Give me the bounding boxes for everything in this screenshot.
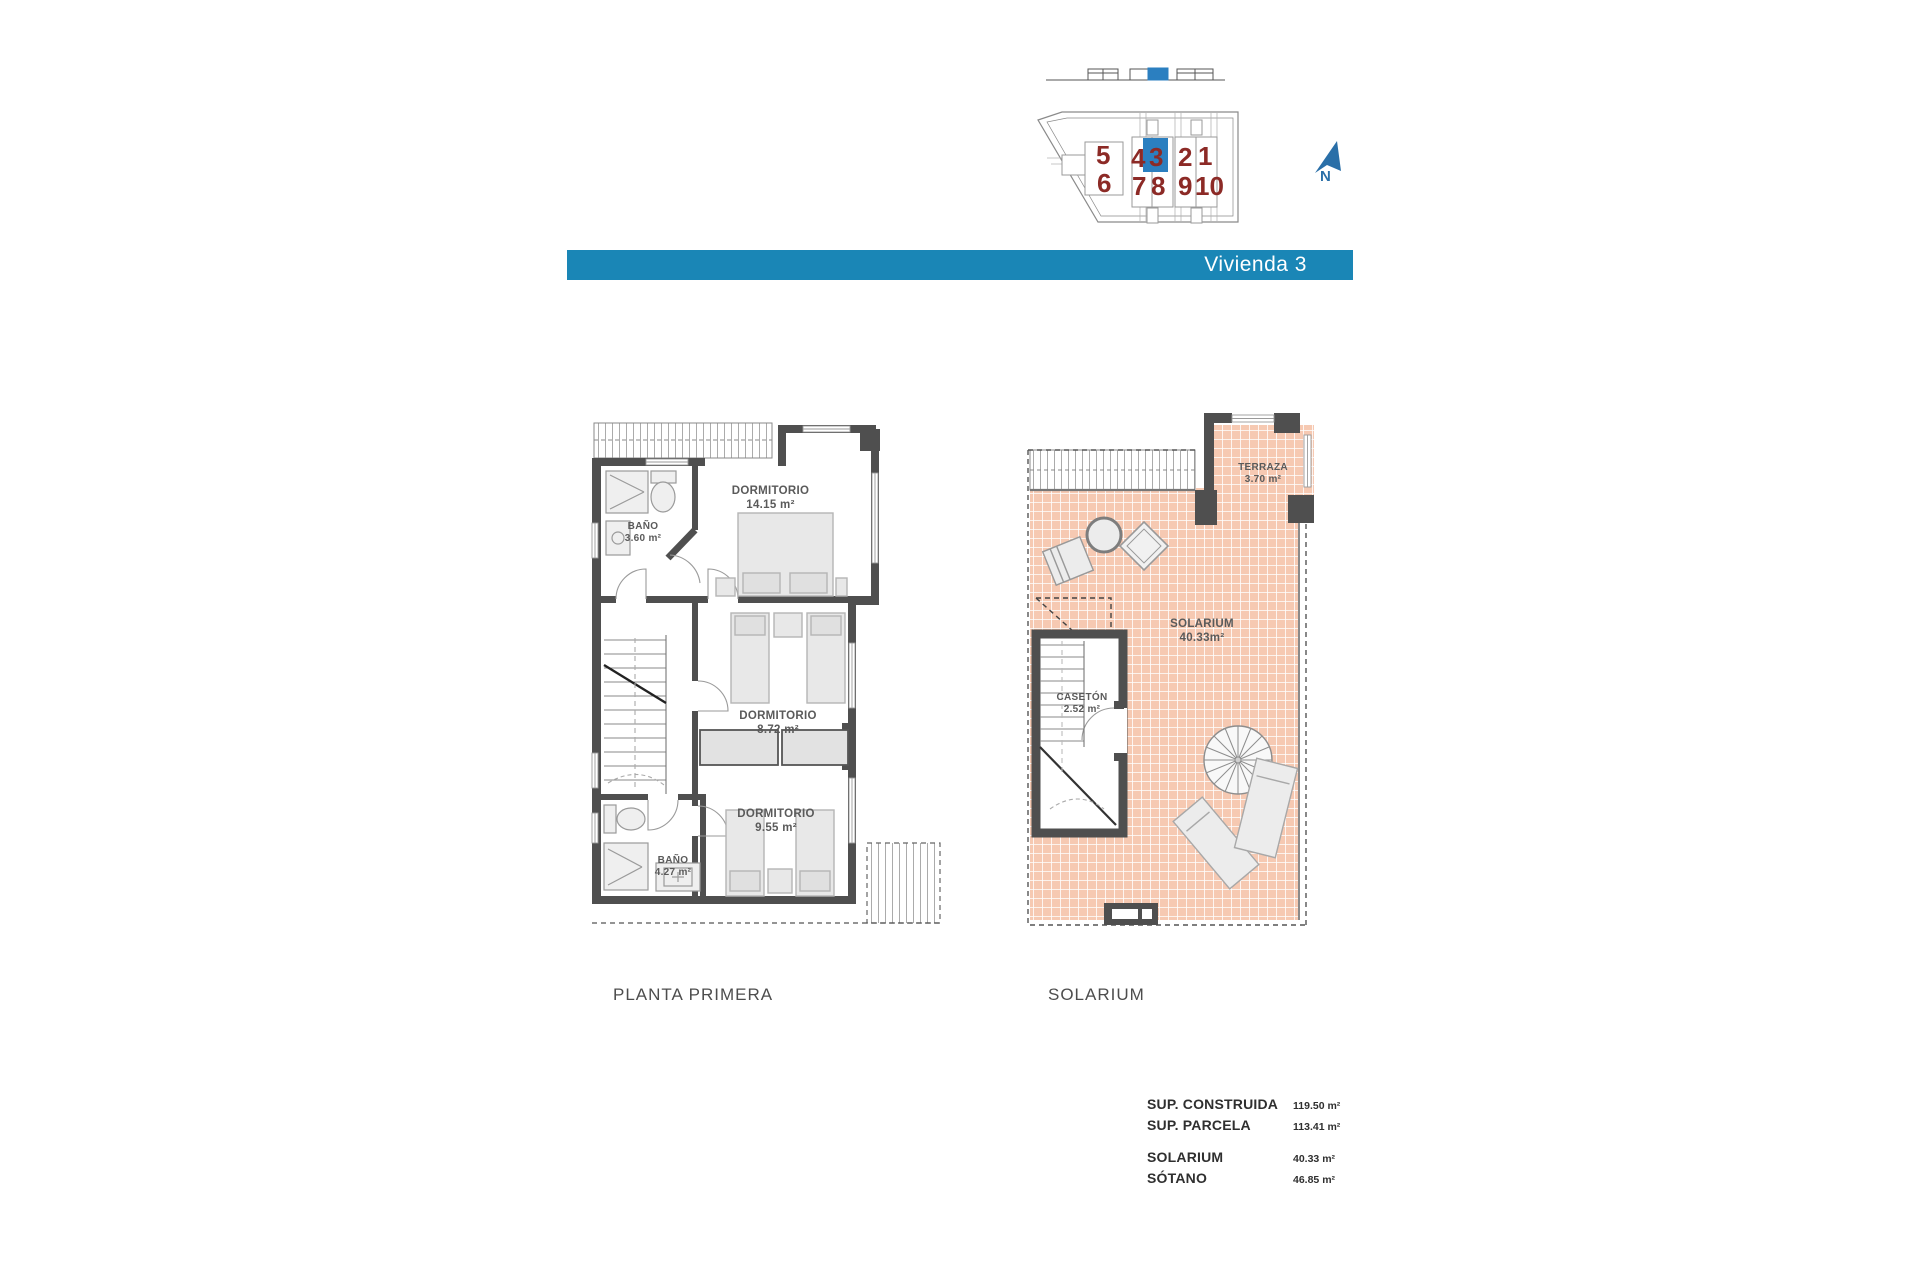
caseton [1036, 634, 1127, 833]
pergola-hatch-bottom-right [867, 843, 940, 923]
unit-number-3: 3 [1149, 144, 1163, 170]
room-label-dorm1: DORMITORIO 14.15 m² [718, 485, 823, 513]
room-label-bath1: BAÑO 3.60 m² [608, 521, 678, 545]
summary-value: 46.85 m² [1293, 1174, 1335, 1186]
summary-row: SUP. PARCELA 113.41 m² [1147, 1117, 1347, 1133]
pergola-hatch-top [594, 423, 772, 458]
unit-number-8: 8 [1151, 173, 1165, 199]
unit-number-7: 7 [1132, 173, 1146, 199]
round-table [1087, 518, 1121, 552]
summary-value: 113.41 m² [1293, 1121, 1340, 1133]
summary-label: SOLARIUM [1147, 1149, 1293, 1165]
room-label-solarium: SOLARIUM 40.33m² [1152, 618, 1252, 646]
caption-solarium: SOLARIUM [1048, 985, 1145, 1005]
summary-label: SUP. PARCELA [1147, 1117, 1293, 1133]
elevation-strip [1046, 68, 1225, 80]
bed-double [716, 513, 847, 596]
unit-number-4: 4 [1131, 145, 1145, 171]
room-label-bath2: BAÑO 4.27 m² [638, 855, 708, 879]
summary-row: SÓTANO 46.85 m² [1147, 1170, 1347, 1186]
chimney [1104, 903, 1158, 925]
beds-twin-upper [731, 613, 845, 703]
unit-number-5: 5 [1096, 142, 1110, 168]
room-label-caseton: CASETÓN 2.52 m² [1042, 692, 1122, 716]
north-label: N [1320, 168, 1331, 185]
title-banner: Vivienda 3 [567, 250, 1353, 280]
unit-number-2: 2 [1178, 144, 1192, 170]
summary-row: SUP. CONSTRUIDA 119.50 m² [1147, 1096, 1347, 1112]
summary-row: SOLARIUM 40.33 m² [1147, 1149, 1347, 1165]
room-label-dorm2: DORMITORIO 8.72 m² [718, 710, 838, 738]
summary-label: SUP. CONSTRUIDA [1147, 1096, 1293, 1112]
area-summary: SUP. CONSTRUIDA 119.50 m² SUP. PARCELA 1… [1147, 1096, 1347, 1186]
summary-value: 119.50 m² [1293, 1100, 1340, 1112]
summary-label: SÓTANO [1147, 1170, 1293, 1186]
unit-number-1: 1 [1198, 143, 1212, 169]
unit-number-6: 6 [1097, 170, 1111, 196]
staircase [604, 635, 666, 794]
solarium-hatch [1030, 450, 1195, 490]
unit-number-10: 10 [1195, 173, 1224, 199]
room-label-dorm3: DORMITORIO 9.55 m² [716, 808, 836, 836]
room-label-terraza: TERRAZA 3.70 m² [1223, 462, 1303, 486]
summary-value: 40.33 m² [1293, 1153, 1335, 1165]
unit-number-9: 9 [1178, 173, 1192, 199]
floorplan-solarium [1016, 413, 1318, 933]
caption-planta-primera: PLANTA PRIMERA [613, 985, 773, 1005]
page-title: Vivienda 3 [1204, 253, 1353, 277]
